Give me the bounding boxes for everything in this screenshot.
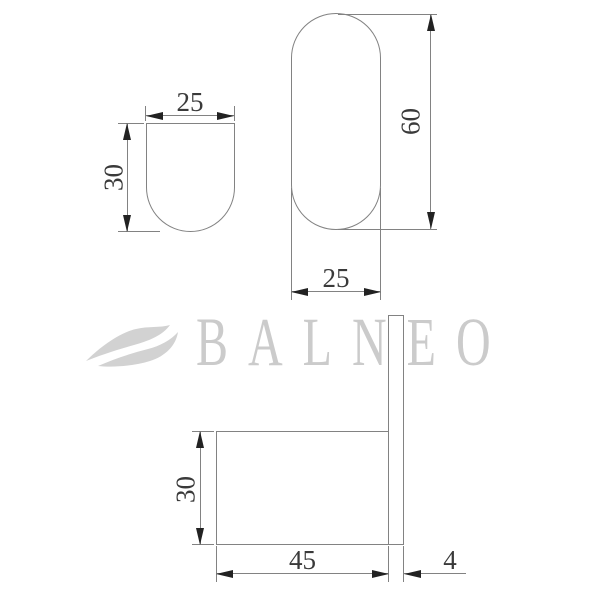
dim-arrow-up [196,431,204,448]
extension-line [338,14,437,15]
side-length-label: 45 [216,547,389,574]
dim-arrow-down [123,215,131,232]
extension-line [234,106,235,121]
wave-icon [84,319,180,369]
dim-arrow-down [196,528,204,545]
small-front-width-label: 25 [146,89,234,116]
side-wall-plate-outline [388,315,404,545]
side-plate-thickness-label: 4 [428,547,472,574]
side-depth-label: 30 [173,470,200,510]
large-front-outline [291,13,381,230]
extension-line [338,229,437,230]
dim-arrow-up [123,123,131,140]
dimension-line [430,14,431,229]
side-arm-outline [216,431,389,545]
small-front-outline [146,123,235,232]
dim-arrow-down [427,212,435,229]
brand-watermark: BALNEO [196,309,511,378]
extension-line [118,123,144,124]
large-front-width-label: 25 [291,265,381,292]
small-front-height-label: 30 [101,158,128,198]
large-front-height-label: 60 [398,102,425,142]
dim-arrow-up [427,14,435,31]
technical-drawing-canvas: BALNEO 25 30 60 25 30 45 4 [0,0,600,600]
dim-arrow-left [404,570,421,578]
